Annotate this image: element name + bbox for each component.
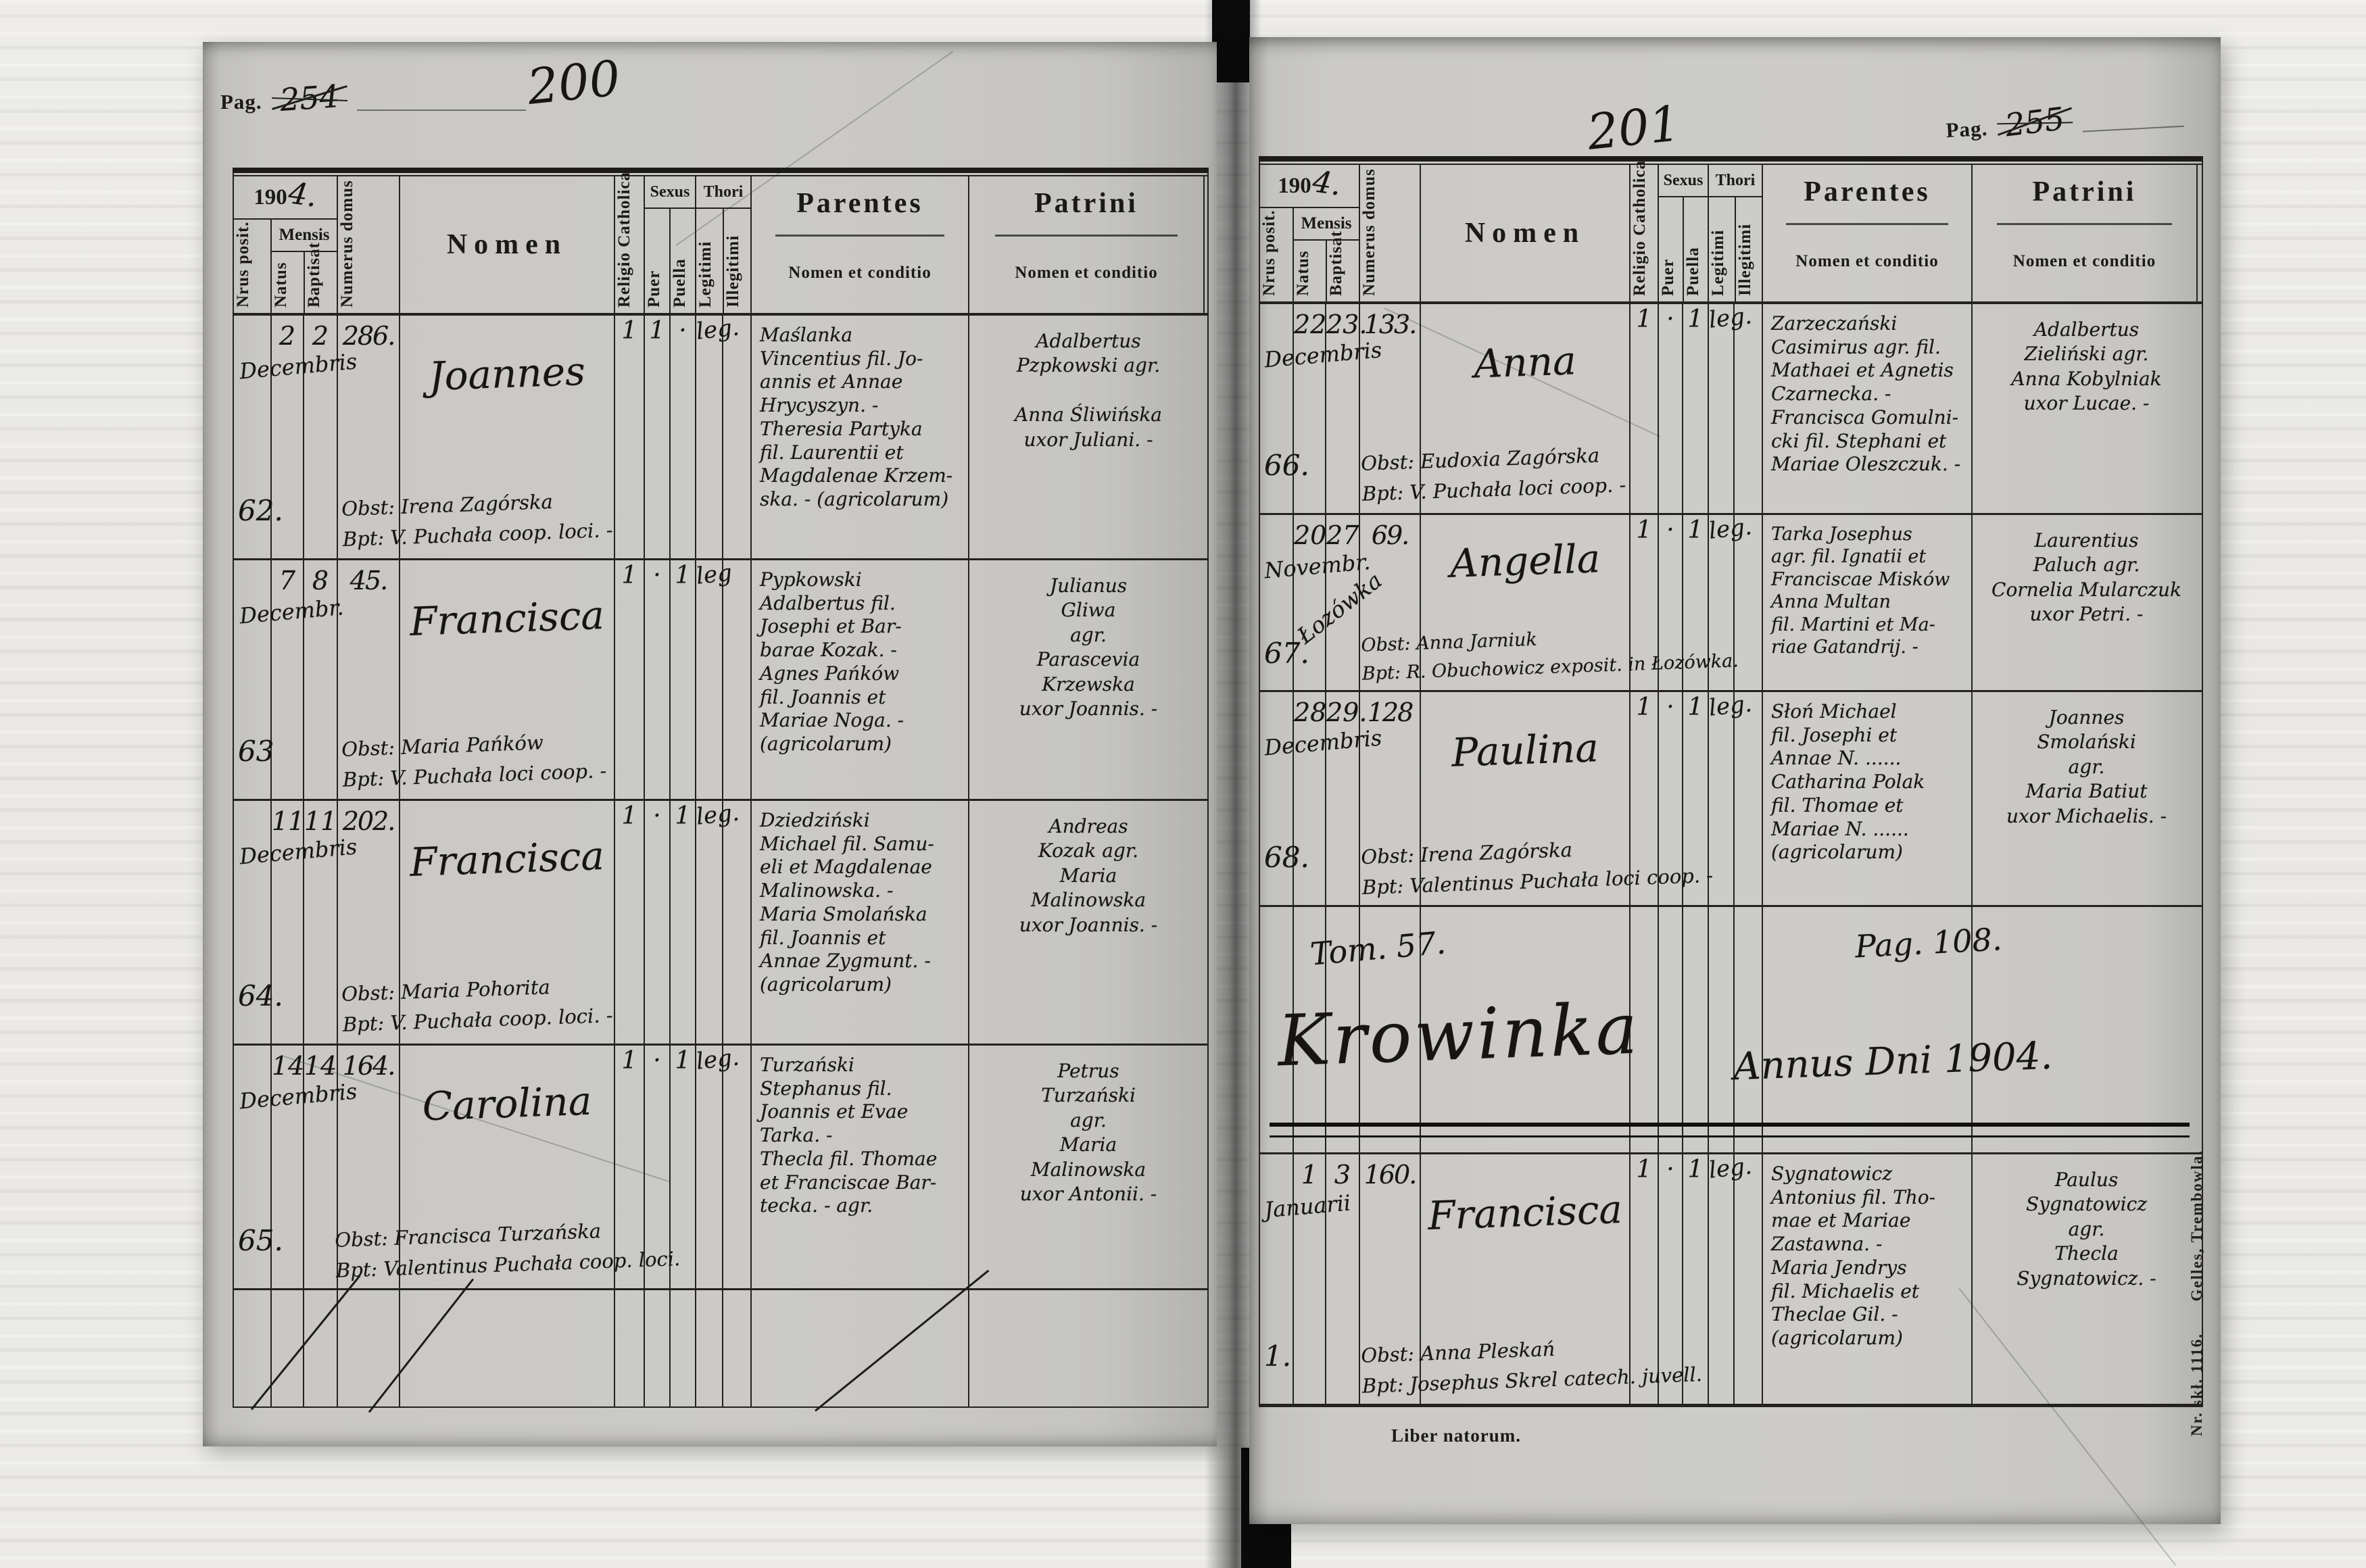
parentes-subheader: Nomen et conditio xyxy=(1795,252,1938,271)
baptisat-day: 3 xyxy=(1326,1160,1359,1190)
puer-mark: · xyxy=(1659,693,1682,721)
religio-mark: 1 xyxy=(1631,516,1658,544)
legitimi-mark: leg. xyxy=(695,1046,723,1075)
table-row: 65. 14 14 164. Carolina 1 · 1 leg. Turza… xyxy=(234,1046,1207,1290)
child-name: Francisca xyxy=(400,592,614,645)
col-header-baptisat: Baptisat xyxy=(1327,241,1359,301)
col-header-thori: Thori xyxy=(696,176,750,209)
header-group-patrini: Patrini Nomen et conditio xyxy=(969,176,1205,313)
table-row: 1. 1 3 160. Francisca 1 · 1 leg. Sygnato… xyxy=(1260,1154,2202,1406)
baptisat-day: 14 xyxy=(304,1051,337,1081)
header-rule xyxy=(775,235,944,237)
col-header-parentes: Parentes xyxy=(796,187,923,220)
baptisat-day: 8 xyxy=(304,566,337,595)
header-group-date: 190 4. Nrus posit. Mensis Natus Baptisat xyxy=(1260,165,1360,301)
patrini-text: Adalbertus Pzpkowski agr. Anna Śliwińska… xyxy=(969,316,1205,452)
child-name: Joannes xyxy=(400,347,614,401)
patrini-text: Paulus Sygnatowicz agr. Thecla Sygnatowi… xyxy=(1973,1154,2198,1291)
religio-mark: 1 xyxy=(1631,1156,1658,1183)
col-header-legitimi: Legitimi xyxy=(696,209,724,313)
natus-day: 22 xyxy=(1294,310,1325,339)
section-divider-row: Tom. 57. Pag. 108. Krowinka Annus Dni 19… xyxy=(1260,907,2202,1154)
patrini-text: Adalbertus Zieliński agr. Anna Kobylniak… xyxy=(1973,304,2198,416)
pag-underline xyxy=(357,109,526,111)
col-header-patrini: Patrini xyxy=(2033,176,2137,208)
puella-mark: · xyxy=(671,317,695,345)
col-header-mensis: Mensis xyxy=(1294,208,1359,241)
header-group-thori: Thori Legitimi Illegitimi xyxy=(1709,165,1763,301)
house-number: 202. xyxy=(338,806,399,836)
obstetrix-baptizer-note: Obst: Irena Zagórska Bpt: V. Puchała coo… xyxy=(341,485,614,555)
col-header-natus: Natus xyxy=(1294,241,1327,301)
puer-mark: · xyxy=(645,1047,669,1075)
baptisat-day: 2 xyxy=(304,321,337,351)
row-number: 63 xyxy=(238,735,274,768)
legitimi-mark: leg. xyxy=(1708,304,1735,334)
religio-mark: 1 xyxy=(615,562,644,589)
natus-day: 7 xyxy=(272,566,303,595)
page-number-line: Pag. 254 xyxy=(220,80,526,116)
cancelled-empty-rows xyxy=(234,1290,1207,1406)
legitimi-mark: leg. xyxy=(695,801,723,831)
table-header: 190 4. Nrus posit. Mensis Natus Baptisat xyxy=(1260,165,2202,304)
table-header: 190 4. Nrus posit. Mensis Natus Baptisat xyxy=(234,176,1207,316)
section-pag-number: Pag. 108. xyxy=(1854,921,2003,964)
col-header-mensis: Mensis xyxy=(272,220,337,252)
table-row: 64. 11 11 202. Francisca 1 · 1 leg. Dzie… xyxy=(234,801,1207,1046)
puer-mark: · xyxy=(1659,305,1682,333)
col-header-legitimi: Legitimi xyxy=(1709,197,1736,301)
patrini-text: Joannes Smolański agr. Maria Batiut uxor… xyxy=(1973,692,2198,829)
col-header-nomen: Nomen xyxy=(1421,165,1631,301)
year-printed: 190 xyxy=(254,185,287,210)
col-header-religio: Religio Catholica xyxy=(615,176,645,313)
child-name: Francisca xyxy=(400,833,614,886)
col-header-puella: Puella xyxy=(671,209,695,313)
legitimi-mark: leg. xyxy=(1708,1154,1735,1184)
old-page-number: 255 xyxy=(1996,99,2073,145)
puella-mark: 1 xyxy=(671,562,695,589)
patrini-text: Laurentius Paluch agr. Cornelia Mularczu… xyxy=(1973,515,2198,627)
year-handwritten: 4. xyxy=(1310,164,1343,202)
puer-mark: · xyxy=(645,562,669,589)
handwritten-page-number: 201 xyxy=(1585,95,1683,161)
col-header-nrus-posit: Nrus posit. xyxy=(234,220,272,313)
puer-mark: · xyxy=(1659,1156,1682,1183)
header-rule xyxy=(995,235,1178,237)
natus-day: 1 xyxy=(1294,1160,1325,1190)
year-cell: 190 4. xyxy=(234,176,337,220)
table-row: 67. 20 27 69. Angella 1 · 1 leg. Tarka J… xyxy=(1260,515,2202,692)
handwritten-page-number: 200 xyxy=(525,49,623,116)
legitimi-mark: leg. xyxy=(695,316,723,345)
col-header-nrus-posit: Nrus posit. xyxy=(1260,208,1294,301)
col-header-religio: Religio Catholica xyxy=(1631,165,1659,301)
page-left: Pag. 254 200 190 4. Nrus posit. Mensis xyxy=(203,42,1217,1446)
table-row: 62. 2 2 286. Joannes 1 1 · leg. Maślanka… xyxy=(234,316,1207,560)
header-group-thori: Thori Legitimi Illegitimi xyxy=(696,176,752,313)
year-cell: 190 4. xyxy=(1260,165,1359,208)
spine-gap-top xyxy=(1212,0,1250,82)
header-group-parentes: Parentes Nomen et conditio xyxy=(1763,165,1973,301)
puer-mark: 1 xyxy=(645,317,669,345)
table-row: 63 7 8 45. Francisca 1 · 1 leg Pypkowski… xyxy=(234,560,1207,801)
natus-day: 20 xyxy=(1294,520,1325,550)
parentes-text: Turzański Stephanus fil. Joannis et Evae… xyxy=(752,1046,968,1218)
row-number: 1. xyxy=(1264,1340,1291,1373)
header-group-patrini: Patrini Nomen et conditio xyxy=(1973,165,2198,301)
natus-day: 11 xyxy=(272,806,303,836)
year-handwritten: 4. xyxy=(286,176,319,214)
legitimi-mark: leg. xyxy=(1708,515,1735,545)
pag-label: Pag. xyxy=(220,90,262,114)
header-group-parentes: Parentes Nomen et conditio xyxy=(752,176,969,313)
child-name: Francisca xyxy=(1420,1186,1630,1240)
baptisat-day: 23. xyxy=(1326,310,1359,339)
register-table-right: 190 4. Nrus posit. Mensis Natus Baptisat xyxy=(1259,156,2203,1407)
natus-day: 2 xyxy=(272,321,303,351)
legitimi-mark: leg xyxy=(695,560,723,590)
child-name: Paulina xyxy=(1420,724,1630,777)
col-header-baptisat: Baptisat xyxy=(305,252,337,313)
old-page-number: 254 xyxy=(272,77,347,118)
religio-mark: 1 xyxy=(1631,305,1658,333)
parentes-text: Dziedziński Michael fil. Samu- eli et Ma… xyxy=(752,801,968,997)
col-header-thori: Thori xyxy=(1709,165,1762,197)
puella-mark: 1 xyxy=(1683,1156,1708,1183)
house-number: 164. xyxy=(338,1051,399,1081)
legitimi-mark: leg. xyxy=(1708,692,1735,722)
pag-label: Pag. xyxy=(1946,116,1988,143)
page-right: Pag. 255 201 190 4. Nrus posit. Mensis xyxy=(1249,37,2221,1524)
page-number-line: Pag. 255 xyxy=(1945,96,2184,145)
header-group-sexus: Sexus Puer Puella xyxy=(1659,165,1709,301)
puer-mark: · xyxy=(645,802,669,830)
parentes-text: Sygnatowicz Antonius fil. Tho- mae et Ma… xyxy=(1763,1154,1971,1350)
parentes-text: Zarzeczański Casimirus agr. fil. Mathaei… xyxy=(1763,304,1971,476)
parentes-text: Słoń Michael fil. Josephi et Annae N. ..… xyxy=(1763,692,1971,864)
religio-mark: 1 xyxy=(1631,693,1658,721)
obstetrix-baptizer-note: Obst: Irena Zagórska Bpt: Valentinus Puc… xyxy=(1361,830,1714,903)
col-header-sexus: Sexus xyxy=(1659,165,1708,197)
obstetrix-baptizer-note: Obst: Eudoxia Zagórska Bpt: V. Puchała l… xyxy=(1361,439,1626,509)
col-header-puella: Puella xyxy=(1684,197,1708,301)
parentes-text: Maślanka Vincentius fil. Jo- annis et An… xyxy=(752,316,968,512)
col-header-illegitimi: Illegitimi xyxy=(1736,197,1762,301)
printer-imprint: Nr. skł. 1116. Gelles, Trembowla. xyxy=(2188,1150,2206,1436)
puella-mark: 1 xyxy=(671,1047,695,1075)
col-header-sexus: Sexus xyxy=(645,176,695,209)
baptisat-day: 29. xyxy=(1326,697,1359,727)
religio-mark: 1 xyxy=(615,802,644,830)
patrini-subheader: Nomen et conditio xyxy=(1015,264,1157,283)
col-header-nomen: Nomen xyxy=(400,176,615,313)
col-header-patrini: Patrini xyxy=(1034,187,1138,220)
patrini-text: Petrus Turzański agr. Maria Malinowska u… xyxy=(969,1046,1205,1206)
header-group-sexus: Sexus Puer Puella xyxy=(645,176,696,313)
parentes-text: Tarka Josephus agr. fil. Ignatii et Fran… xyxy=(1763,515,1971,659)
col-header-natus: Natus xyxy=(272,252,305,313)
col-header-puer: Puer xyxy=(645,209,671,313)
col-header-parentes: Parentes xyxy=(1804,176,1931,208)
obstetrix-baptizer-note: Obst: Maria Pańków Bpt: V. Puchała loci … xyxy=(341,725,607,795)
puella-mark: 1 xyxy=(1683,305,1708,333)
parentes-subheader: Nomen et conditio xyxy=(788,264,931,283)
child-name: Carolina xyxy=(400,1077,614,1131)
register-table-left: 190 4. Nrus posit. Mensis Natus Baptisat xyxy=(233,168,1209,1408)
header-rule xyxy=(1786,223,1948,225)
house-number: 286. xyxy=(338,321,399,351)
obstetrix-baptizer-note: Obst: Maria Pohorita Bpt: V. Puchała coo… xyxy=(341,970,614,1040)
obstetrix-baptizer-note: Obst: Anna Pleskań Bpt: Josephus Skrel c… xyxy=(1361,1329,1703,1401)
register-scan: Pag. 254 200 190 4. Nrus posit. Mensis xyxy=(0,0,2366,1568)
natus-day: 28 xyxy=(1294,697,1325,727)
header-group-date: 190 4. Nrus posit. Mensis Natus Baptisat xyxy=(234,176,338,313)
puella-mark: 1 xyxy=(1683,693,1708,721)
religio-mark: 1 xyxy=(615,1047,644,1075)
baptisat-day: 27 xyxy=(1326,520,1359,550)
puella-mark: 1 xyxy=(1683,516,1708,544)
puella-mark: 1 xyxy=(671,802,695,830)
liber-natorum-label: Liber natorum. xyxy=(1391,1425,1521,1446)
section-underline xyxy=(1270,1123,2190,1137)
year-printed: 190 xyxy=(1278,174,1311,199)
obstetrix-baptizer-note: Obst: Francisca Turzańska Bpt: Valentinu… xyxy=(335,1213,681,1286)
patrini-text: Julianus Gliwa agr. Parascevia Krzewska … xyxy=(969,560,1205,721)
child-name: Angella xyxy=(1420,535,1630,588)
table-row: 66. 22 23. 133. Anna 1 · 1 leg. Zarzecza… xyxy=(1260,304,2202,515)
col-header-illegitimi: Illegitimi xyxy=(724,209,750,313)
pag-underline xyxy=(2082,126,2183,132)
religio-mark: 1 xyxy=(615,317,644,345)
col-header-numerus-domus: Numerus domus xyxy=(338,176,400,313)
col-header-puer: Puer xyxy=(1659,197,1684,301)
house-number: 45. xyxy=(338,566,399,595)
parentes-text: Pypkowski Adalbertus fil. Josephi et Bar… xyxy=(752,560,968,756)
natus-day: 14 xyxy=(272,1051,303,1081)
header-rule xyxy=(1997,223,2171,225)
baptisat-day: 11 xyxy=(304,806,337,836)
col-header-numerus-domus: Numerus domus xyxy=(1360,165,1421,301)
table-row: 68. 28 29. 128 Paulina 1 · 1 leg. Słoń M… xyxy=(1260,692,2202,907)
section-place-title: Krowinka xyxy=(1276,987,1641,1083)
patrini-subheader: Nomen et conditio xyxy=(2013,252,2156,271)
child-name: Anna xyxy=(1420,336,1630,389)
patrini-text: Andreas Kozak agr. Maria Malinowska uxor… xyxy=(969,801,1205,937)
puer-mark: · xyxy=(1659,516,1682,544)
